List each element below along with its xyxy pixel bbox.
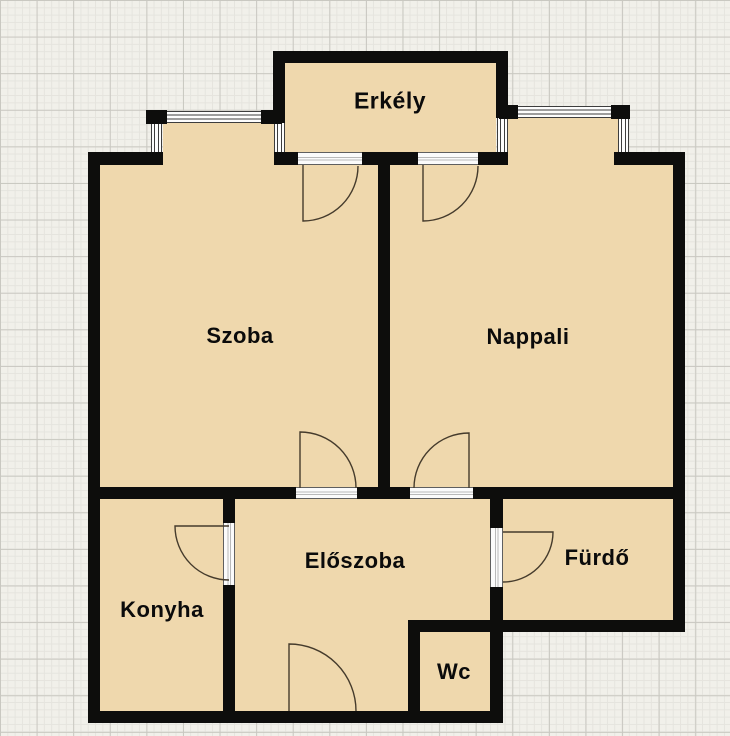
door-arc-balcony-right: [423, 165, 478, 221]
room-label-szoba: Szoba: [206, 323, 273, 349]
door-arc-szoba: [300, 432, 356, 488]
room-label-erkely: Erkély: [354, 88, 426, 115]
door-arc-nappali: [414, 433, 469, 488]
door-arc-balcony-left: [303, 165, 358, 221]
door-arc-furdo: [503, 532, 553, 582]
room-label-furdo: Fürdő: [565, 545, 630, 571]
room-label-eloszoba: Előszoba: [305, 548, 406, 574]
door-arc-konyha: [175, 526, 229, 580]
room-label-nappali: Nappali: [487, 324, 570, 350]
room-label-konyha: Konyha: [120, 597, 204, 623]
room-label-wc: Wc: [437, 659, 471, 685]
door-arc-entrance: [289, 644, 356, 711]
floor-plan: Erkély Szoba Nappali Konyha Előszoba Für…: [0, 0, 730, 736]
